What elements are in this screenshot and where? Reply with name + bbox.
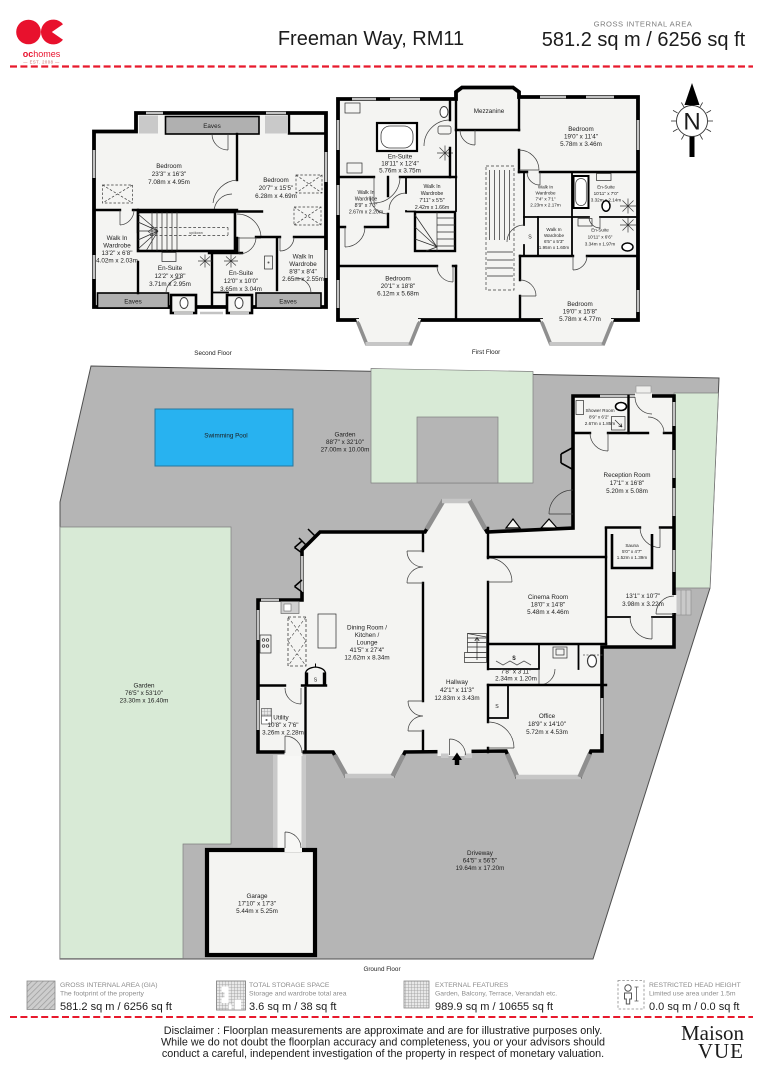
svg-text:Utility: Utility bbox=[273, 715, 289, 722]
svg-text:Wardrobe: Wardrobe bbox=[421, 191, 444, 197]
svg-text:Eaves: Eaves bbox=[124, 299, 142, 306]
svg-text:3.65m x 3.04m: 3.65m x 3.04m bbox=[220, 286, 262, 293]
svg-text:Kitchen /: Kitchen / bbox=[355, 632, 380, 639]
svg-text:581.2 sq m / 6256 sq ft: 581.2 sq m / 6256 sq ft bbox=[60, 1001, 172, 1013]
svg-text:— EST. 2008 —: — EST. 2008 — bbox=[23, 60, 60, 65]
svg-text:Limited use area under 1.5m: Limited use area under 1.5m bbox=[649, 991, 736, 998]
svg-text:3.6 sq m / 38 sq ft: 3.6 sq m / 38 sq ft bbox=[249, 1001, 336, 1013]
svg-text:Walk In: Walk In bbox=[546, 227, 562, 232]
svg-text:3.98m x 3.22m: 3.98m x 3.22m bbox=[622, 601, 664, 608]
svg-text:3.71m x 2.95m: 3.71m x 2.95m bbox=[149, 281, 191, 288]
svg-text:6'5" x 5'3": 6'5" x 5'3" bbox=[544, 239, 564, 244]
svg-text:En-Suite: En-Suite bbox=[229, 270, 254, 277]
svg-text:RESTRICTED HEAD HEIGHT: RESTRICTED HEAD HEIGHT bbox=[649, 982, 741, 989]
svg-text:Walk In: Walk In bbox=[357, 190, 374, 196]
svg-text:581.2 sq m / 6256 sq ft: 581.2 sq m / 6256 sq ft bbox=[542, 29, 746, 51]
svg-text:Driveway: Driveway bbox=[467, 850, 494, 857]
svg-text:Walk In: Walk In bbox=[107, 235, 128, 242]
svg-text:17'10" x 17'3": 17'10" x 17'3" bbox=[238, 901, 276, 908]
svg-text:8'8" x 8'4": 8'8" x 8'4" bbox=[289, 269, 317, 276]
svg-text:5'0" x 4'7": 5'0" x 4'7" bbox=[622, 549, 642, 554]
svg-text:Mezzanine: Mezzanine bbox=[474, 108, 505, 115]
svg-text:23'3" x 16'3": 23'3" x 16'3" bbox=[152, 171, 187, 178]
svg-text:12'2" x 9'8": 12'2" x 9'8" bbox=[154, 273, 185, 280]
svg-text:The footprint of the property: The footprint of the property bbox=[60, 991, 144, 998]
svg-text:Wardrobe: Wardrobe bbox=[289, 261, 317, 268]
svg-text:Walk In: Walk In bbox=[538, 185, 554, 190]
svg-text:12.83m x 3.43m: 12.83m x 3.43m bbox=[434, 695, 479, 702]
svg-text:2.67m x 1.85m: 2.67m x 1.85m bbox=[585, 421, 616, 426]
svg-text:6.28m x 4.69m: 6.28m x 4.69m bbox=[255, 193, 297, 200]
svg-text:Eaves: Eaves bbox=[203, 123, 221, 130]
svg-text:conduct a careful, independent: conduct a careful, independent investiga… bbox=[162, 1048, 604, 1060]
svg-text:Second Floor: Second Floor bbox=[194, 350, 231, 357]
svg-text:Cinema Room: Cinema Room bbox=[528, 594, 568, 601]
svg-text:Bedroom: Bedroom bbox=[385, 276, 411, 283]
svg-text:Shower Room: Shower Room bbox=[585, 408, 614, 413]
svg-text:3.26m x 2.28m: 3.26m x 2.28m bbox=[262, 730, 304, 737]
svg-text:19'0" x 11'4": 19'0" x 11'4" bbox=[564, 134, 598, 141]
svg-text:12'0" x 10'0": 12'0" x 10'0" bbox=[224, 278, 259, 285]
svg-text:7'4" x 7'1": 7'4" x 7'1" bbox=[535, 197, 555, 202]
svg-text:En-Suite: En-Suite bbox=[158, 265, 183, 272]
svg-text:En-Suite: En-Suite bbox=[591, 228, 609, 233]
svg-text:5.76m x 3.75m: 5.76m x 3.75m bbox=[379, 168, 421, 175]
svg-text:Eaves: Eaves bbox=[279, 299, 297, 306]
svg-text:2.34m x 1.20m: 2.34m x 1.20m bbox=[495, 676, 537, 683]
svg-text:19.64m x 17.20m: 19.64m x 17.20m bbox=[456, 865, 505, 872]
svg-text:18'0" x 14'8": 18'0" x 14'8" bbox=[531, 602, 566, 609]
svg-text:41'5" x 27'4": 41'5" x 27'4" bbox=[350, 647, 385, 654]
svg-text:18'11" x 12'4": 18'11" x 12'4" bbox=[381, 161, 419, 168]
svg-text:VUE: VUE bbox=[698, 1039, 744, 1063]
svg-text:Garden: Garden bbox=[133, 683, 155, 690]
svg-text:Wardrobe: Wardrobe bbox=[103, 243, 131, 250]
svg-text:7.08m x 4.95m: 7.08m x 4.95m bbox=[148, 179, 190, 186]
svg-text:20'1" x 18'8": 20'1" x 18'8" bbox=[381, 283, 416, 290]
svg-text:2.67m x 2.20m: 2.67m x 2.20m bbox=[349, 210, 383, 216]
svg-text:0.0 sq m / 0.0 sq ft: 0.0 sq m / 0.0 sq ft bbox=[649, 1001, 740, 1013]
svg-text:5.72m x 4.53m: 5.72m x 4.53m bbox=[526, 729, 568, 736]
svg-text:19'0" x 15'8": 19'0" x 15'8" bbox=[563, 309, 598, 316]
svg-text:S: S bbox=[528, 235, 532, 241]
svg-text:20'7" x 15'5": 20'7" x 15'5" bbox=[259, 185, 294, 192]
svg-text:TOTAL STORAGE SPACE: TOTAL STORAGE SPACE bbox=[249, 982, 330, 989]
svg-text:Garden, Balcony, Terrace, Vera: Garden, Balcony, Terrace, Verandah etc. bbox=[435, 991, 557, 998]
svg-text:Lounge: Lounge bbox=[356, 640, 378, 647]
svg-text:27.00m x 10.00m: 27.00m x 10.00m bbox=[321, 447, 370, 454]
svg-text:Wardrobe: Wardrobe bbox=[536, 191, 556, 196]
svg-text:While we do not doubt the floo: While we do not doubt the floorplan accu… bbox=[161, 1037, 605, 1049]
svg-text:5.44m x 5.25m: 5.44m x 5.25m bbox=[236, 908, 278, 915]
svg-text:5.20m x 5.08m: 5.20m x 5.08m bbox=[606, 488, 648, 495]
svg-text:7'8" x 3'11": 7'8" x 3'11" bbox=[501, 669, 532, 676]
svg-text:Freeman Way, RM11: Freeman Way, RM11 bbox=[278, 28, 464, 50]
svg-text:6.12m x 5.68m: 6.12m x 5.68m bbox=[377, 291, 419, 298]
svg-text:1.95m x 1.60m: 1.95m x 1.60m bbox=[539, 245, 570, 250]
svg-text:3.34m x 1.97m: 3.34m x 1.97m bbox=[585, 242, 616, 247]
svg-text:S: S bbox=[495, 704, 499, 710]
svg-text:989.9 sq m / 10655 sq ft: 989.9 sq m / 10655 sq ft bbox=[435, 1001, 553, 1013]
svg-text:En-Suite: En-Suite bbox=[597, 185, 615, 190]
svg-text:13'2" x 6'8": 13'2" x 6'8" bbox=[101, 250, 132, 257]
svg-text:S: S bbox=[314, 678, 318, 684]
svg-text:5.78m x 4.77m: 5.78m x 4.77m bbox=[559, 316, 601, 323]
svg-text:First Floor: First Floor bbox=[472, 349, 500, 356]
svg-text:Walk In: Walk In bbox=[423, 184, 440, 190]
svg-text:4.02m x 2.03m: 4.02m x 2.03m bbox=[96, 258, 138, 265]
svg-text:76'5" x 53'10": 76'5" x 53'10" bbox=[125, 690, 163, 697]
svg-text:23.30m x 16.40m: 23.30m x 16.40m bbox=[120, 698, 169, 705]
svg-text:10'11" x 6'6": 10'11" x 6'6" bbox=[588, 235, 613, 240]
svg-text:Garage: Garage bbox=[246, 893, 268, 900]
svg-text:2.23m x 2.17m: 2.23m x 2.17m bbox=[530, 203, 561, 208]
svg-text:Bedroom: Bedroom bbox=[568, 126, 594, 133]
svg-text:Bedroom: Bedroom bbox=[567, 301, 593, 308]
svg-text:64'5" x 56'5": 64'5" x 56'5" bbox=[463, 858, 498, 865]
svg-text:Reception Room: Reception Room bbox=[604, 472, 651, 479]
svg-text:Dining Room /: Dining Room / bbox=[347, 625, 387, 632]
svg-text:2.65m x 2.55m: 2.65m x 2.55m bbox=[282, 276, 324, 283]
svg-text:1.52m x 1.39m: 1.52m x 1.39m bbox=[617, 555, 648, 560]
svg-text:N: N bbox=[683, 109, 700, 136]
svg-text:18'9" x 14'10": 18'9" x 14'10" bbox=[528, 721, 566, 728]
svg-text:88'7" x 32'10": 88'7" x 32'10" bbox=[326, 439, 364, 446]
svg-text:up/down: up/down bbox=[189, 231, 203, 235]
svg-text:S: S bbox=[512, 656, 516, 662]
svg-text:En-Suite: En-Suite bbox=[388, 154, 413, 161]
svg-text:Storage and wardrobe total are: Storage and wardrobe total area bbox=[249, 991, 347, 998]
svg-text:Office: Office bbox=[539, 713, 556, 720]
svg-text:10'8" x 7'6": 10'8" x 7'6" bbox=[267, 722, 298, 729]
svg-text:42'1" x 11'3": 42'1" x 11'3" bbox=[440, 687, 474, 694]
svg-text:7'11" x 5'5": 7'11" x 5'5" bbox=[419, 198, 444, 204]
svg-text:12.62m x 8.34m: 12.62m x 8.34m bbox=[344, 655, 389, 662]
svg-text:Garden: Garden bbox=[334, 432, 356, 439]
svg-text:GROSS INTERNAL AREA (GIA): GROSS INTERNAL AREA (GIA) bbox=[60, 982, 158, 989]
svg-text:8'9" x 6'2": 8'9" x 6'2" bbox=[589, 415, 609, 420]
svg-text:Wardrobe: Wardrobe bbox=[544, 233, 564, 238]
svg-text:8'9" x 7'3": 8'9" x 7'3" bbox=[355, 203, 378, 209]
svg-text:Hallway: Hallway bbox=[446, 679, 469, 686]
svg-text:EXTERNAL FEATURES: EXTERNAL FEATURES bbox=[435, 982, 509, 989]
svg-text:Ground Floor: Ground Floor bbox=[363, 966, 400, 973]
svg-text:5.48m x 4.46m: 5.48m x 4.46m bbox=[527, 609, 569, 616]
svg-text:Sauna: Sauna bbox=[625, 543, 639, 548]
svg-text:17'1" x 16'8": 17'1" x 16'8" bbox=[610, 480, 645, 487]
svg-text:Walk In: Walk In bbox=[293, 254, 314, 261]
svg-text:10'11" x 7'0": 10'11" x 7'0" bbox=[594, 191, 619, 196]
svg-text:Swimming Pool: Swimming Pool bbox=[204, 433, 247, 440]
svg-text:Bedroom: Bedroom bbox=[263, 177, 289, 184]
svg-text:2.42m x 1.66m: 2.42m x 1.66m bbox=[415, 205, 449, 211]
svg-text:13'1" x 10'7": 13'1" x 10'7" bbox=[626, 593, 661, 600]
svg-text:ochomes: ochomes bbox=[23, 49, 61, 59]
svg-text:GROSS INTERNAL AREA: GROSS INTERNAL AREA bbox=[594, 19, 693, 28]
svg-text:Bedroom: Bedroom bbox=[156, 163, 182, 170]
svg-text:5.78m x 3.46m: 5.78m x 3.46m bbox=[560, 141, 602, 148]
svg-text:Disclaimer : Floorplan measure: Disclaimer : Floorplan measurements are … bbox=[164, 1025, 602, 1037]
